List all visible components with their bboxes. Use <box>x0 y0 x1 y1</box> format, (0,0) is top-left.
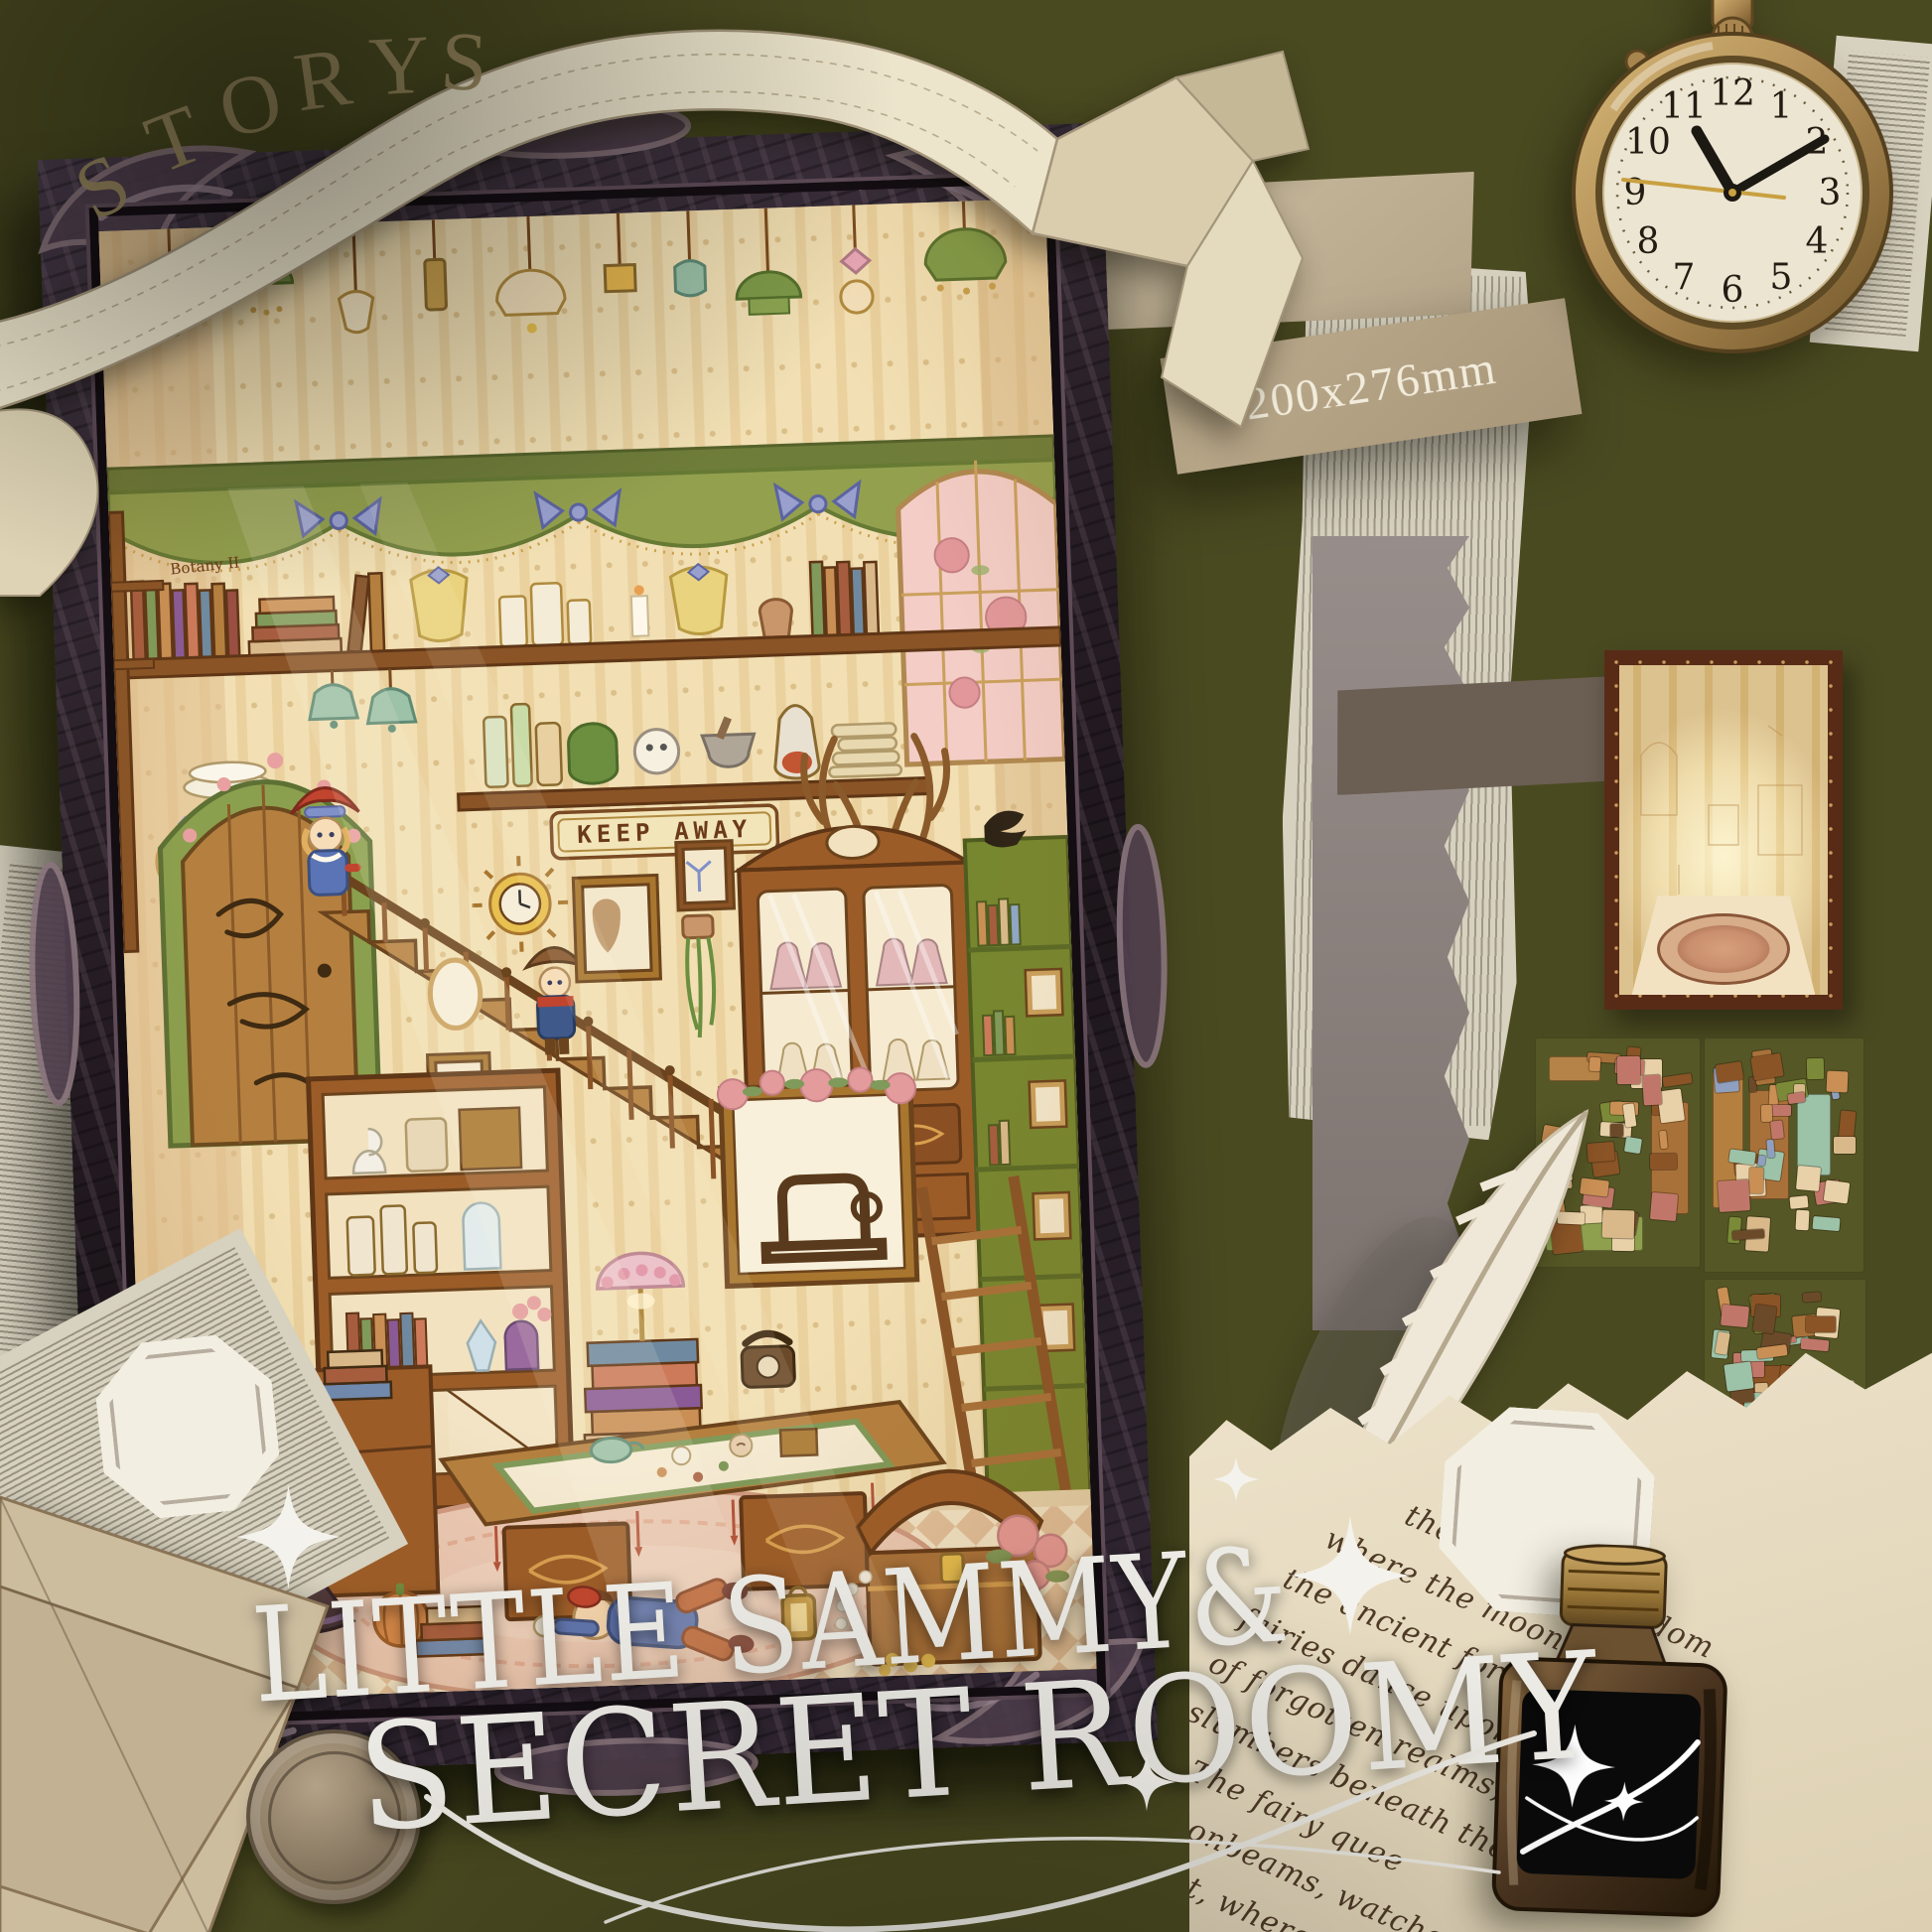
sticker-item <box>1650 1154 1678 1170</box>
svg-text:1: 1 <box>1770 86 1793 127</box>
room-background-card <box>1604 650 1843 1010</box>
svg-text:12: 12 <box>1710 73 1755 114</box>
poster-canvas: 200x276mm <box>0 0 1932 1932</box>
sticker-item <box>1662 1073 1692 1087</box>
sparkle-icon <box>1213 1451 1259 1507</box>
sticker-item <box>1796 1166 1822 1191</box>
sticker-item <box>1826 1071 1848 1093</box>
sticker-item <box>1718 1179 1750 1212</box>
sticker-item <box>1624 1137 1642 1154</box>
sticker-item <box>1724 1362 1753 1393</box>
sticker-item <box>1770 1105 1791 1116</box>
sticker-item <box>1602 1209 1634 1238</box>
sticker-item <box>1721 1305 1749 1327</box>
sticker-accent <box>1797 1094 1831 1175</box>
sticker-item <box>1802 1293 1821 1304</box>
sticker-item <box>1813 1216 1841 1232</box>
sticker-item <box>1796 1210 1810 1230</box>
banner-letter: O <box>209 51 291 159</box>
sticker-item <box>1610 1124 1623 1137</box>
svg-text:10: 10 <box>1625 122 1671 163</box>
sticker-item <box>1617 1056 1640 1084</box>
banner-letter: T <box>133 85 215 194</box>
sticker-item <box>1824 1180 1851 1204</box>
sticker-item <box>1659 1131 1668 1150</box>
svg-text:11: 11 <box>1661 86 1707 127</box>
svg-text:4: 4 <box>1806 221 1829 262</box>
sticker-item <box>1622 1104 1636 1129</box>
sticker-item <box>1770 1121 1784 1140</box>
sticker-item <box>1834 1137 1856 1154</box>
room-card-wallpaper <box>1619 665 1828 995</box>
sparkle-icon <box>236 1467 341 1606</box>
svg-text:8: 8 <box>1637 221 1660 262</box>
sticker-item <box>1806 1316 1836 1332</box>
banner-letter: Y <box>367 16 433 115</box>
sticker-item <box>1750 1053 1784 1081</box>
title-flourish <box>357 1678 1598 1932</box>
sticker-item <box>1806 1057 1823 1078</box>
sticker-item <box>1716 1332 1731 1356</box>
sticker-item <box>1801 1337 1830 1350</box>
sticker-item <box>1728 1149 1756 1165</box>
svg-text:3: 3 <box>1819 173 1842 213</box>
sticker-item <box>1642 1075 1662 1106</box>
sticker-item <box>1761 1104 1773 1121</box>
banner-letter: S <box>61 134 146 241</box>
sparkle-icon <box>1291 1501 1410 1650</box>
sticker-item <box>1752 1304 1776 1333</box>
pocket-watch: 12 1 2 3 4 5 6 7 8 9 10 11 <box>1534 0 1931 387</box>
banner-letters: S T O R Y S <box>0 0 596 318</box>
banner-letter: S <box>438 13 489 111</box>
sparkle-icon <box>1118 1747 1175 1817</box>
room-card-rug <box>1657 913 1790 985</box>
sticker-item <box>1757 1156 1765 1167</box>
svg-text:7: 7 <box>1673 257 1696 298</box>
banner-letter: R <box>289 29 357 132</box>
sticker-sheet-2 <box>1704 1037 1864 1273</box>
sticker-item <box>1748 1168 1763 1194</box>
sticker-item <box>1589 1056 1601 1070</box>
svg-text:5: 5 <box>1770 257 1793 298</box>
sticker-item <box>1790 1195 1809 1209</box>
svg-text:6: 6 <box>1722 270 1744 311</box>
sticker-item <box>1650 1192 1678 1221</box>
